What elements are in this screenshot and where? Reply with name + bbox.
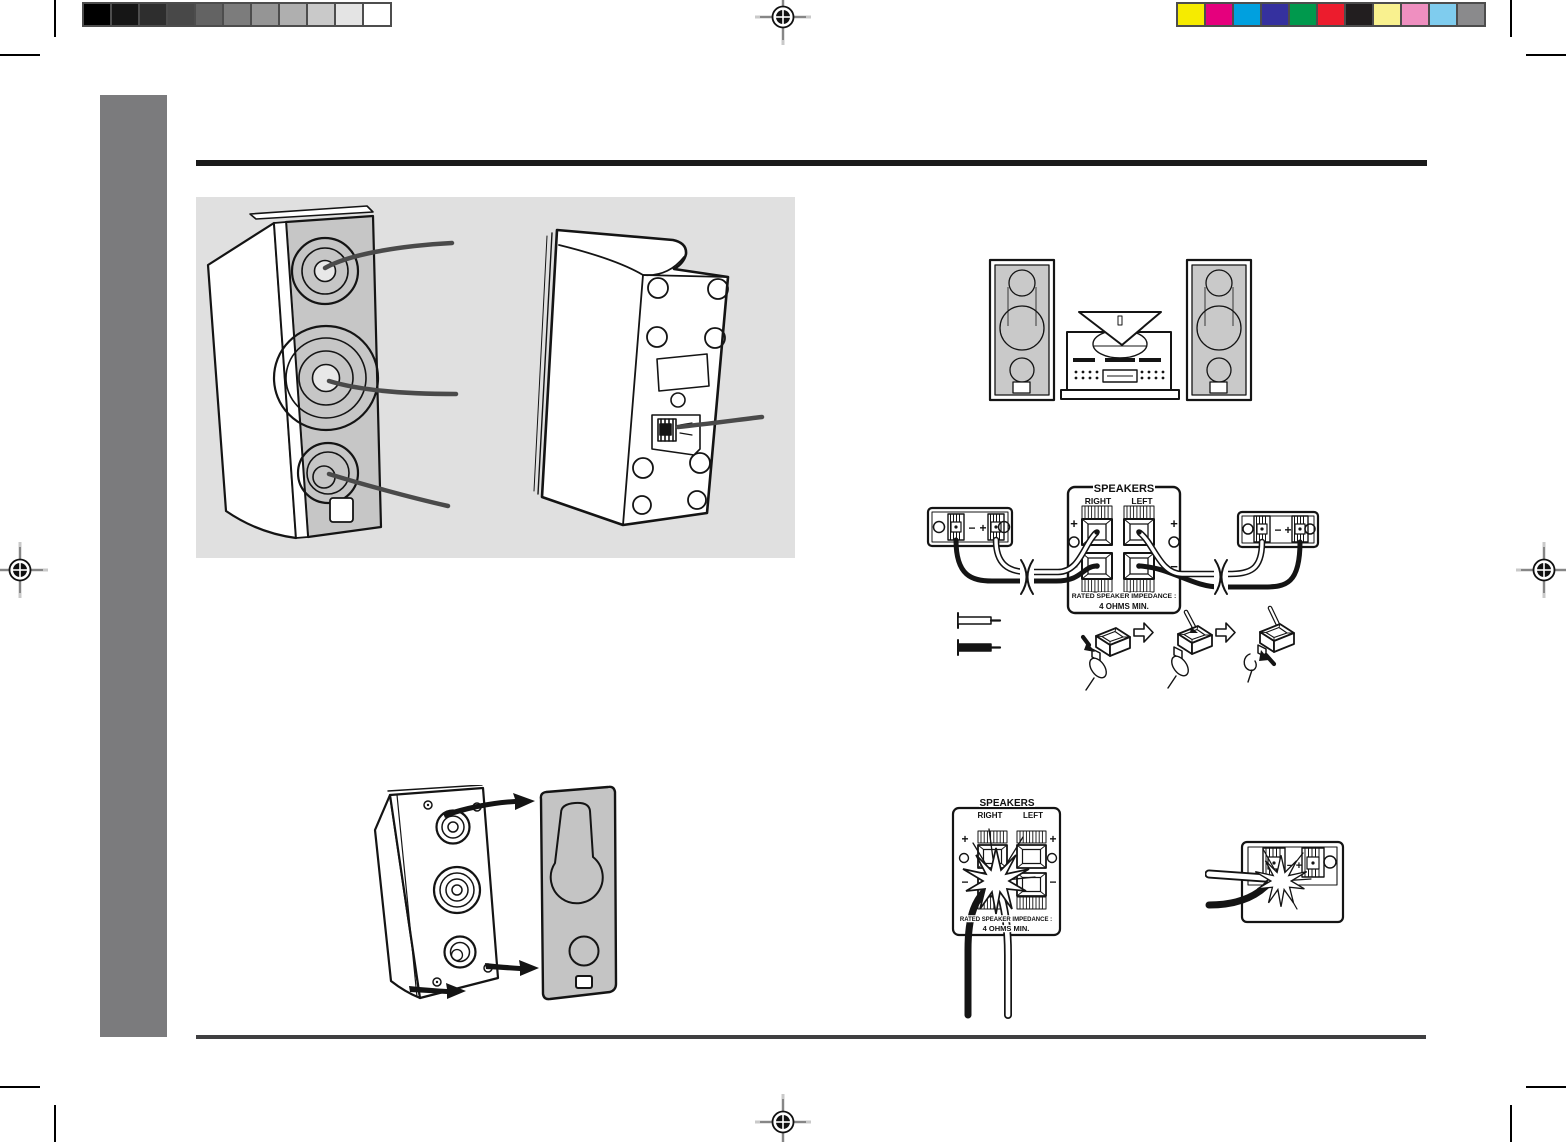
speaker-front-back-drawing (196, 197, 795, 558)
left-speaker-terminal-block: − + (928, 508, 1012, 546)
plus-label: + (1284, 523, 1291, 537)
crop-mark (1510, 1105, 1512, 1142)
minus-label: − (968, 521, 975, 535)
left-channel-label: LEFT (1131, 496, 1153, 506)
calibration-swatch (1290, 4, 1316, 25)
grille-removal-figure (365, 785, 630, 1020)
rated-impedance-line1: RATED SPEAKER IMPEDANCE : (960, 917, 1052, 923)
placement-right-speaker (1187, 260, 1251, 400)
chapter-sidebar-tab (100, 95, 167, 1037)
speaker-connection-diagram: SPEAKERS RIGHT LEFT + + − − − + (920, 470, 1340, 700)
calibration-swatch (1346, 4, 1372, 25)
plus-label: + (979, 521, 986, 535)
plus-label: + (1070, 516, 1078, 531)
clip-connection-step-1 (1083, 628, 1130, 690)
rated-impedance-line2: 4 OHMS MIN. (1099, 602, 1149, 611)
calibration-swatch (1374, 4, 1400, 25)
terminal-short-circuit-figure: − + (1205, 835, 1355, 935)
calibration-swatch (168, 4, 194, 25)
calibration-swatch (1234, 4, 1260, 25)
left-channel-label: LEFT (1023, 811, 1043, 820)
minus-label: − (961, 875, 968, 889)
calibration-swatch (1206, 4, 1232, 25)
calibration-swatch (364, 4, 390, 25)
placement-left-speaker (990, 260, 1054, 400)
registration-mark-icon (0, 540, 50, 600)
section-top-rule (196, 160, 1427, 166)
calibration-swatch (252, 4, 278, 25)
crop-mark (1526, 1086, 1566, 1088)
calibration-swatch (140, 4, 166, 25)
speaker-grille (541, 787, 616, 999)
speaker-rear-view (534, 230, 762, 525)
system-placement-figure (975, 250, 1265, 410)
plus-label: + (1170, 516, 1178, 531)
calibration-swatch (1178, 4, 1204, 25)
calibration-swatch (280, 4, 306, 25)
crop-mark (0, 54, 40, 56)
rear-terminal-detail (652, 415, 700, 455)
placement-main-unit (1061, 312, 1179, 399)
calibration-swatch (308, 4, 334, 25)
minus-label: − (1049, 875, 1056, 889)
speaker-without-grille (375, 785, 498, 998)
rated-impedance-line2: 4 OHMS MIN. (983, 924, 1030, 933)
speakers-panel-title: SPEAKERS (1094, 483, 1155, 495)
registration-mark-icon (1514, 540, 1566, 600)
color-calibration-bar (1176, 2, 1486, 27)
registration-mark-icon (753, 0, 813, 47)
rated-impedance-line1: RATED SPEAKER IMPEDANCE : (1072, 593, 1176, 600)
right-channel-label: RIGHT (978, 811, 1003, 820)
minus-label: − (1274, 523, 1281, 537)
clip-connection-step-2 (1168, 612, 1212, 688)
right-channel-label: RIGHT (1085, 496, 1112, 506)
clip-connection-step-3 (1244, 608, 1294, 682)
manual-page: SPEAKERS RIGHT LEFT + + − − − + (0, 0, 1566, 1142)
calibration-swatch (224, 4, 250, 25)
crop-mark (54, 0, 56, 37)
calibration-swatch (1318, 4, 1344, 25)
calibration-swatch (112, 4, 138, 25)
stripped-wire-ends (958, 613, 1000, 655)
registration-mark-icon (753, 1092, 813, 1142)
crop-mark (54, 1105, 56, 1142)
calibration-swatch (1430, 4, 1456, 25)
crop-mark (1510, 0, 1512, 37)
plus-label: + (961, 832, 968, 846)
calibration-swatch (1458, 4, 1484, 25)
crop-mark (1526, 54, 1566, 56)
calibration-swatch (84, 4, 110, 25)
speakers-panel-title: SPEAKERS (979, 798, 1034, 809)
calibration-swatch (1402, 4, 1428, 25)
calibration-swatch (336, 4, 362, 25)
plus-label: + (1049, 832, 1056, 846)
right-speaker-terminal-block: − + (1238, 512, 1318, 547)
crop-mark (0, 1086, 40, 1088)
grayscale-calibration-bar (82, 2, 392, 27)
short-circuit-warning-figure: SPEAKERS RIGHT LEFT + + − − RATED SPEAKE… (945, 795, 1090, 1020)
speaker-front-back-figure (196, 197, 795, 558)
section-bottom-rule (196, 1035, 1426, 1039)
calibration-swatch (1262, 4, 1288, 25)
calibration-swatch (196, 4, 222, 25)
